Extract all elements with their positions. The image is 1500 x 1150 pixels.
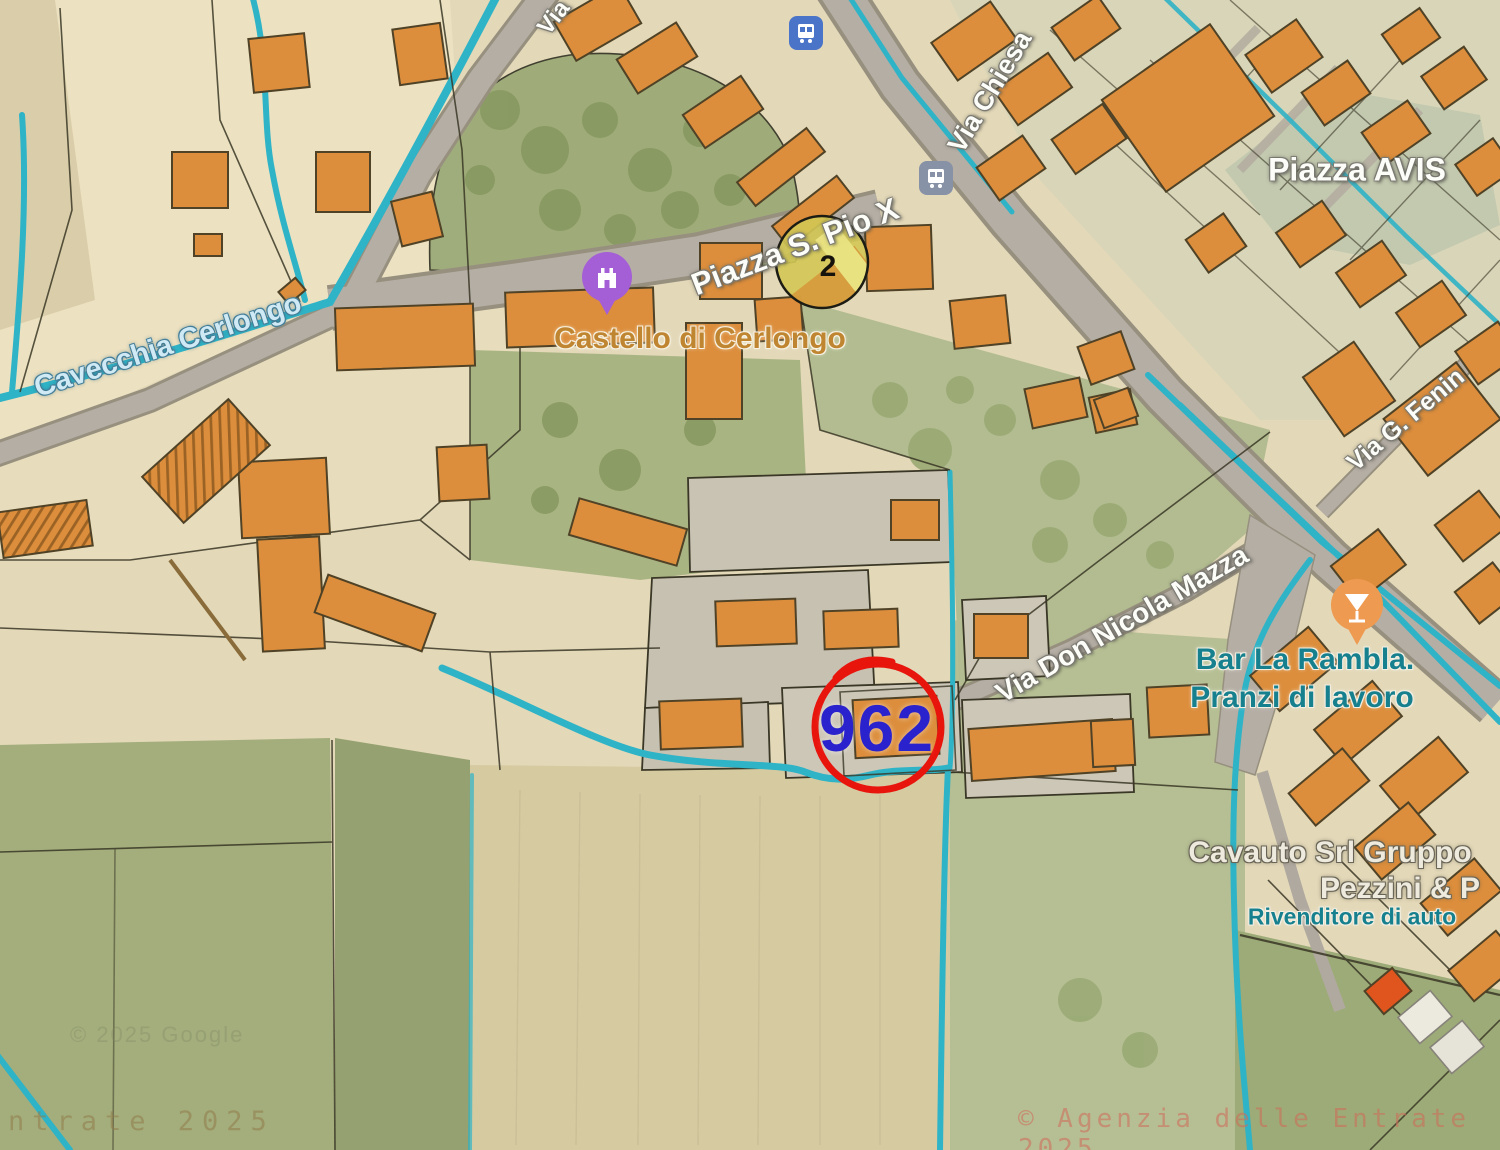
- bus-stop-icon[interactable]: [789, 16, 823, 50]
- bus-stop-icon[interactable]: [919, 161, 953, 195]
- map-graphics: [0, 0, 1500, 1150]
- map-canvas[interactable]: Via Piazza S. Pio X Via Chiesa Piazza AV…: [0, 0, 1500, 1150]
